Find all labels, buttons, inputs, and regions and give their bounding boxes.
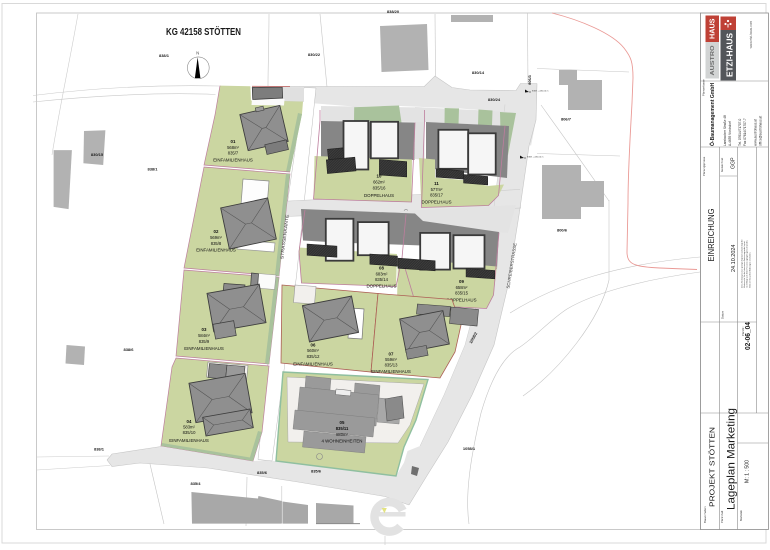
- svg-text:DOPPELHAUS: DOPPELHAUS: [364, 193, 394, 198]
- svg-text:1058/1: 1058/1: [463, 446, 476, 451]
- svg-text:830/15: 830/15: [91, 152, 104, 157]
- svg-text:Diese Zeichnung ist unser geis: Diese Zeichnung ist unser geistiges Eige…: [741, 239, 744, 288]
- svg-text:EINFAMILIENHAUS: EINFAMILIENHAUS: [169, 438, 209, 443]
- svg-text:08: 08: [379, 266, 384, 271]
- svg-text:806/7: 806/7: [561, 117, 572, 122]
- svg-text:830/24: 830/24: [488, 97, 501, 102]
- svg-text:09: 09: [459, 279, 464, 284]
- svg-text:Gezeichnet: Gezeichnet: [720, 158, 724, 172]
- svg-text:Maße am Bau prüfen! Änderungen: Maße am Bau prüfen! Änderungen vorbehalt…: [748, 252, 751, 288]
- svg-text:04: 04: [187, 419, 192, 424]
- svg-text:ETZI-HAUS: ETZI-HAUS: [725, 32, 734, 77]
- svg-text:Planinhalt: Planinhalt: [720, 510, 724, 523]
- svg-text:vervielfältigt noch dritten Pe: vervielfältigt noch dritten Personen zug…: [746, 240, 749, 288]
- svg-text:02-06_04: 02-06_04: [745, 322, 752, 350]
- svg-text:560m²: 560m²: [307, 348, 319, 353]
- svg-text:835/14: 835/14: [375, 277, 388, 282]
- svg-text:07: 07: [389, 352, 394, 357]
- svg-text:838/6: 838/6: [123, 347, 134, 352]
- svg-text:05: 05: [340, 420, 345, 425]
- svg-text:A-4655 Vorchdorf: A-4655 Vorchdorf: [728, 121, 732, 146]
- svg-text:EINFAMILIENHAUS: EINFAMILIENHAUS: [184, 346, 224, 351]
- svg-text:800/6: 800/6: [557, 228, 568, 233]
- svg-text:office@austrohaus.at: office@austrohaus.at: [759, 116, 763, 146]
- svg-text:838/1: 838/1: [159, 53, 170, 58]
- svg-text:Lageplan Marketing: Lageplan Marketing: [726, 408, 738, 510]
- svg-text:838/1: 838/1: [147, 167, 158, 172]
- svg-text:GGP: GGP: [731, 157, 737, 169]
- svg-text:EINFAMILIENHAUS: EINFAMILIENHAUS: [293, 362, 333, 367]
- svg-text:835/15: 835/15: [455, 291, 468, 296]
- svg-text:Datum: Datum: [721, 310, 725, 319]
- svg-text:838/1: 838/1: [94, 447, 105, 452]
- svg-text:M: 1 : 500: M: 1 : 500: [745, 460, 751, 483]
- svg-text:835/16: 835/16: [373, 186, 386, 191]
- svg-text:835/17: 835/17: [430, 193, 443, 198]
- svg-text:835/7: 835/7: [228, 151, 239, 156]
- svg-text:24.10.2024: 24.10.2024: [731, 245, 737, 273]
- svg-text:02: 02: [214, 229, 219, 234]
- svg-text:835/6: 835/6: [257, 470, 268, 475]
- svg-text:683m²: 683m²: [376, 272, 388, 277]
- svg-text:Lambacher Straße 48: Lambacher Straße 48: [723, 115, 727, 146]
- svg-text:N: N: [196, 51, 199, 56]
- svg-text:4 WOHNEINHEITEN: 4 WOHNEINHEITEN: [322, 439, 363, 444]
- svg-text:11: 11: [434, 181, 439, 186]
- svg-text:01: 01: [231, 139, 236, 144]
- svg-text:662m²: 662m²: [373, 180, 385, 185]
- svg-text:583m²: 583m²: [183, 425, 195, 430]
- svg-text:830/14: 830/14: [472, 70, 485, 75]
- svg-text:835/4: 835/4: [190, 481, 201, 486]
- svg-text:HAUS: HAUS: [710, 18, 717, 39]
- svg-text:658m²: 658m²: [456, 285, 468, 290]
- svg-text:AUSTRO: AUSTRO: [710, 46, 716, 76]
- svg-text:835/10: 835/10: [183, 430, 196, 435]
- svg-text:www.austrohaus.at: www.austrohaus.at: [754, 119, 758, 146]
- svg-text:EINFAMILIENHAUS: EINFAMILIENHAUS: [213, 158, 253, 163]
- svg-text:838/1 +430.00 m: 838/1 +430.00 m: [527, 157, 544, 159]
- svg-text:835/13: 835/13: [385, 363, 398, 368]
- svg-text:568m²: 568m²: [227, 145, 239, 150]
- svg-text:569m²: 569m²: [210, 235, 222, 240]
- svg-text:838/1 +430.00 m: 838/1 +430.00 m: [532, 91, 549, 93]
- svg-text:835/12: 835/12: [307, 354, 320, 359]
- svg-text:806/3: 806/3: [528, 75, 532, 85]
- svg-text:Tel. 07614/71707-0: Tel. 07614/71707-0: [738, 118, 742, 146]
- svg-text:Maßstab: Maßstab: [739, 510, 743, 521]
- svg-text:Planverfasser: Planverfasser: [702, 79, 706, 96]
- svg-text:www.etzi-haus.com: www.etzi-haus.com: [749, 21, 753, 49]
- svg-text:PROJEKT STÖTTEN: PROJEKT STÖTTEN: [708, 427, 717, 507]
- svg-text:EINFAMILIENHAUS: EINFAMILIENHAUS: [371, 369, 411, 374]
- svg-text:880m²: 880m²: [336, 432, 348, 437]
- svg-text:584m²: 584m²: [198, 333, 210, 338]
- svg-text:EINREICHUNG: EINREICHUNG: [706, 208, 716, 261]
- svg-text:838/20: 838/20: [387, 9, 400, 14]
- svg-text:KG 42158 STÖTTEN: KG 42158 STÖTTEN: [166, 27, 241, 38]
- svg-text:Planungsphase: Planungsphase: [702, 156, 706, 176]
- svg-text:559m²: 559m²: [385, 357, 397, 362]
- svg-text:06: 06: [311, 343, 316, 348]
- svg-text:Urheberrecht. Sie darf ohne un: Urheberrecht. Sie darf ohne unsere Zusti…: [743, 240, 746, 288]
- svg-text:835/11: 835/11: [336, 426, 349, 431]
- svg-text:835/8: 835/8: [211, 241, 222, 246]
- svg-text:577m²: 577m²: [431, 187, 443, 192]
- svg-text:830/22: 830/22: [308, 52, 321, 57]
- svg-text:835/9: 835/9: [199, 339, 210, 344]
- svg-text:10: 10: [377, 174, 382, 179]
- svg-text:03: 03: [202, 327, 207, 332]
- svg-text:Fax 07614/71707-7: Fax 07614/71707-7: [743, 118, 747, 146]
- svg-text:Bauvorhaben: Bauvorhaben: [703, 506, 707, 523]
- svg-text:DOPPELHAUS: DOPPELHAUS: [366, 284, 396, 289]
- svg-text:835/6: 835/6: [311, 469, 322, 474]
- svg-text:DOPPELHAUS: DOPPELHAUS: [421, 200, 451, 205]
- svg-text:EINFAMILIENHAUS: EINFAMILIENHAUS: [196, 248, 236, 253]
- svg-text:Ö-Baumanagement GmbH: Ö-Baumanagement GmbH: [709, 83, 716, 146]
